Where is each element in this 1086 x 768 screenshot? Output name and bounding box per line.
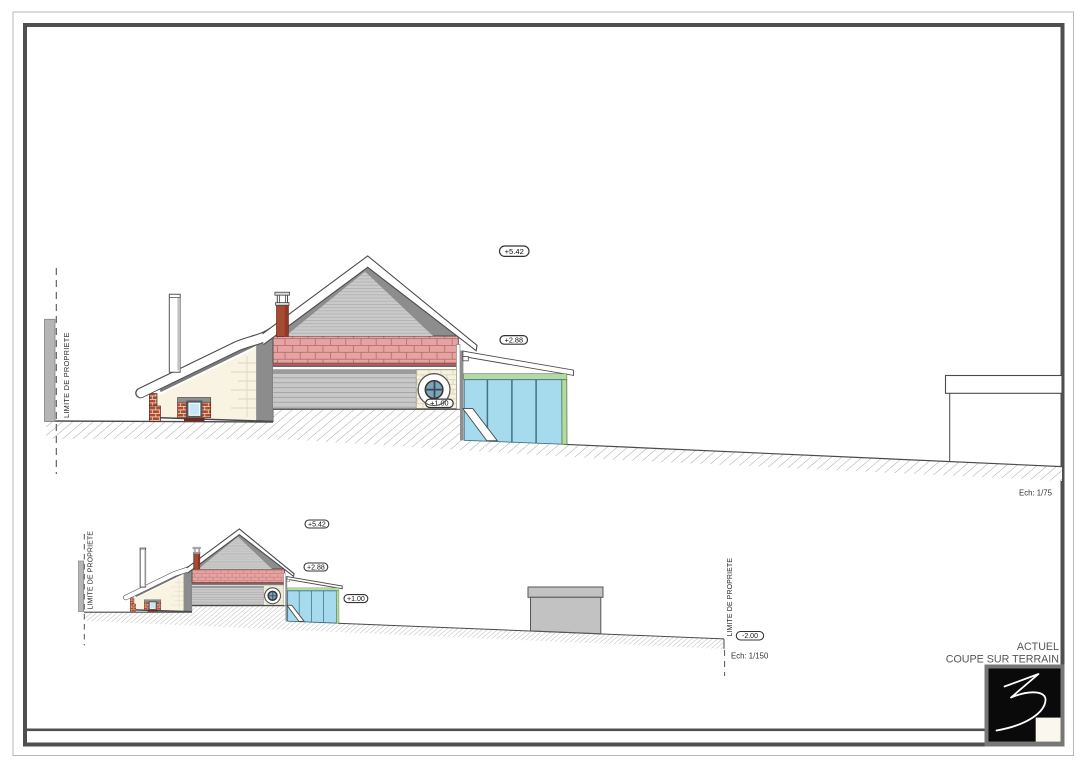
- svg-text:Ech: 1/150: Ech: 1/150: [731, 652, 769, 661]
- svg-text:LIMITE DE PROPRIETE: LIMITE DE PROPRIETE: [88, 531, 95, 610]
- svg-text:Ech: 1/75: Ech: 1/75: [1019, 489, 1053, 498]
- svg-text:ACTUEL: ACTUEL: [1017, 641, 1059, 653]
- svg-text:+5.42: +5.42: [308, 521, 326, 528]
- svg-text:-2.00: -2.00: [742, 633, 758, 640]
- svg-text:LIMITE DE PROPRIETE: LIMITE DE PROPRIETE: [62, 332, 71, 418]
- svg-text:+1.00: +1.00: [347, 596, 365, 603]
- svg-text:+2.88: +2.88: [505, 336, 523, 345]
- svg-text:LIMITE DE PROPRIETE: LIMITE DE PROPRIETE: [727, 558, 734, 637]
- svg-text:+5.42: +5.42: [505, 247, 524, 256]
- svg-text:COUPE SUR TERRAIN: COUPE SUR TERRAIN: [946, 653, 1059, 665]
- svg-text:+2.88: +2.88: [307, 564, 325, 571]
